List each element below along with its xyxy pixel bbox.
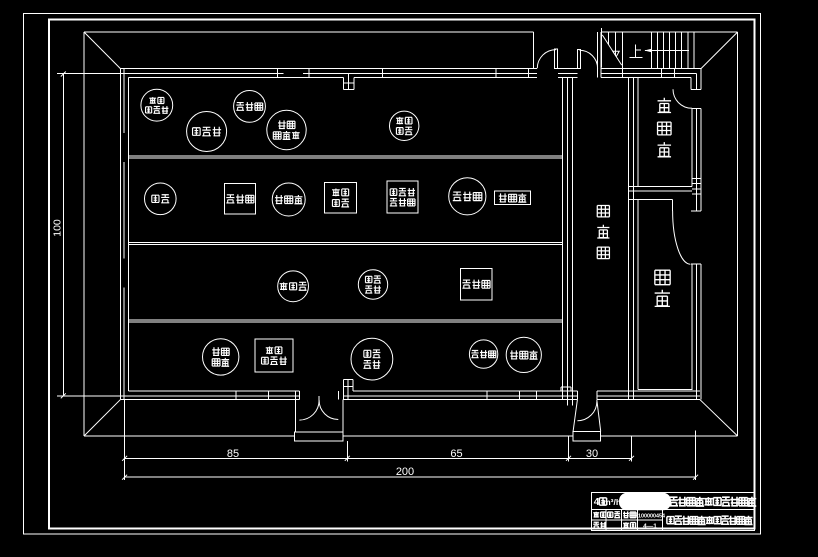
- svg-text:85: 85: [227, 448, 239, 460]
- svg-text:100: 100: [52, 219, 64, 237]
- svg-text:200: 200: [396, 466, 414, 478]
- svg-text:2100000454: 2100000454: [635, 514, 665, 520]
- svg-text:30: 30: [586, 448, 598, 460]
- svg-text:65: 65: [450, 448, 462, 460]
- svg-text:4—1: 4—1: [643, 523, 657, 530]
